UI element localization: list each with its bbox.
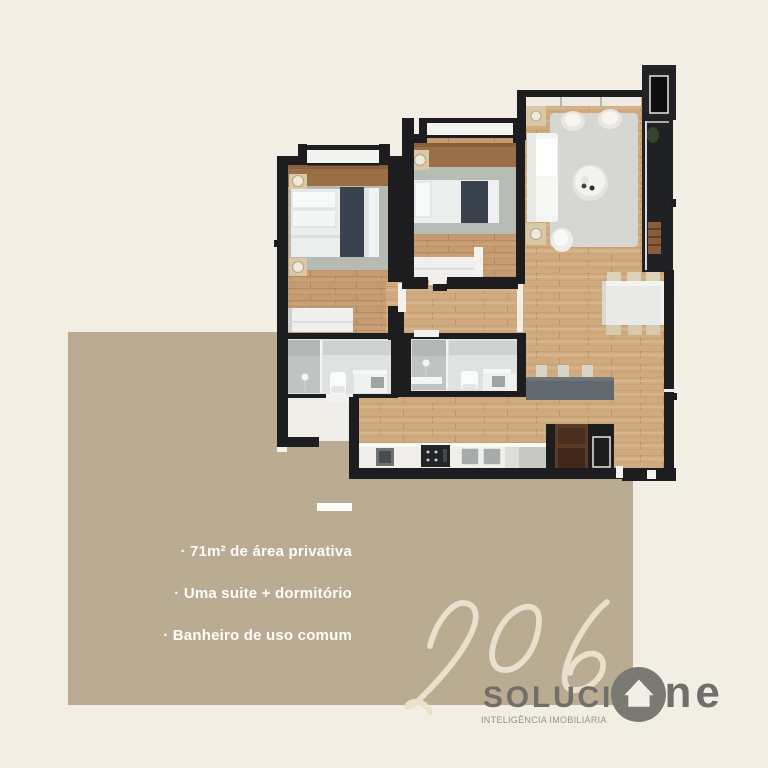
svg-text:· Uma suite + dormitório: · Uma suite + dormitório <box>174 585 352 602</box>
svg-text:INTELIGÊNCIA IMOBILIÁRIA: INTELIGÊNCIA IMOBILIÁRIA <box>481 715 607 725</box>
svg-text:ne: ne <box>665 668 724 717</box>
svg-text:· 71m² de área privativa: · 71m² de área privativa <box>180 543 352 560</box>
svg-text:· Banheiro de uso comum: · Banheiro de uso comum <box>163 627 352 644</box>
svg-text:SOLUCI: SOLUCI <box>483 681 613 714</box>
